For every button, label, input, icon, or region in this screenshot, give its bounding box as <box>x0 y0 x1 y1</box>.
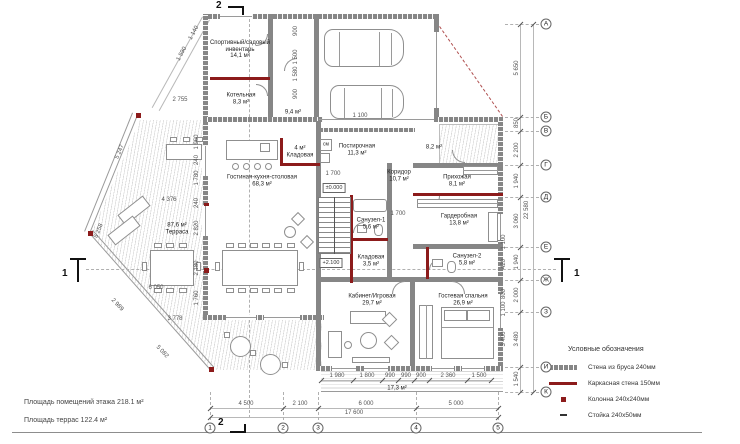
axis-bubble: Е <box>541 242 552 253</box>
room-label-line: Постирочная <box>339 143 375 150</box>
dimension-label: 1 980 <box>329 373 344 379</box>
wall-segment <box>268 14 273 122</box>
room-label-line: 29,7 м² <box>348 300 395 307</box>
dimension-label: 2 000 <box>514 287 520 302</box>
dimension-label: 1 500 <box>293 49 299 64</box>
room-label-line: Котельная <box>226 92 255 99</box>
room-label-line: Прихожая <box>443 174 471 181</box>
section-mark-1: 1 <box>62 268 68 279</box>
entry-porch-deck <box>439 124 501 165</box>
dimension-label: 850 <box>514 118 520 128</box>
room-label: 4 м²Кладовая <box>287 145 314 158</box>
legend-item: Колонна 240x240мм <box>548 391 728 407</box>
window-pane <box>332 368 356 369</box>
dimension-label: 800 <box>501 289 507 299</box>
chair <box>250 243 258 248</box>
kitchen-island <box>226 140 278 160</box>
desk <box>328 331 342 358</box>
chair <box>183 137 190 142</box>
stool <box>232 163 239 170</box>
dimension-label: 1 700 <box>390 211 405 217</box>
section-mark-flag <box>561 260 563 282</box>
chair <box>226 288 234 293</box>
washing-machine-label: см <box>323 142 329 149</box>
room-label-line: 17,3 м² <box>387 386 406 393</box>
room-label-line: 8,3 м² <box>226 99 255 106</box>
dimension-line <box>210 417 498 418</box>
legend-item-label: Стойка 240x50мм <box>588 412 642 419</box>
room-label: 9,4 м² <box>285 110 301 117</box>
room-label: 87,6 м²Терраса <box>165 222 188 235</box>
section-mark-flag <box>242 6 244 15</box>
rug <box>360 332 377 349</box>
axis-bubble: К <box>541 387 552 398</box>
dimension-label: 1 500 <box>471 373 486 379</box>
room-label-line: 5,8 м² <box>453 260 482 267</box>
axis-bubble: Д <box>541 192 552 203</box>
pillow <box>467 310 490 321</box>
frame-wall-segment <box>350 238 388 241</box>
elevation-mark: +2.100 <box>320 258 343 268</box>
column-icon <box>209 367 214 372</box>
dimension-label: 990 <box>401 373 411 379</box>
room-label-line: 14,1 м² <box>210 53 270 60</box>
axis-bubble: 4 <box>411 423 422 434</box>
room-label-line: 68,3 м² <box>227 181 297 188</box>
room-label: Кабинет/Игровая29,7 м² <box>348 293 395 306</box>
dimension-label: 900 <box>416 373 426 379</box>
desk-chair <box>344 341 352 349</box>
dimension-label: 5 000 <box>448 401 463 407</box>
axis-bubble: Б <box>541 112 552 123</box>
bathtub <box>353 199 387 212</box>
dimension-label: 1 940 <box>514 173 520 188</box>
frame-wall-swatch-icon <box>548 382 578 385</box>
room-label: 17,3 м² <box>387 386 406 393</box>
axis-bubble: 1 <box>205 423 216 434</box>
dimension-line <box>533 24 534 392</box>
dimension-label: 5 082 <box>155 345 170 360</box>
section-mark-flag <box>77 260 79 282</box>
window-pane <box>226 317 256 318</box>
laundry-sink <box>320 153 330 163</box>
dimension-label: 240 <box>194 198 200 208</box>
room-label-line: Спортивный/садовый <box>210 40 270 47</box>
legend-item: Каркасная стена 150мм <box>548 375 728 391</box>
room-label-line: 3,5 м² <box>358 261 385 268</box>
timber-wall-swatch-icon <box>548 365 578 370</box>
room-label: Котельная8,3 м² <box>226 92 255 105</box>
dimension-label: 900 <box>293 26 299 36</box>
room-label-line: Кладовая <box>287 152 314 159</box>
dimension-label: 3 778 <box>167 316 182 322</box>
wall-segment <box>314 14 319 122</box>
room-label-line: 13,8 м² <box>441 220 477 227</box>
room-label: Коридор10,7 м² <box>387 169 411 182</box>
section-mark-1: 1 <box>574 268 580 279</box>
dimension-label: 1 960 <box>194 134 200 149</box>
dimension-label: 17 600 <box>345 410 363 416</box>
round-table <box>230 336 251 357</box>
frame-wall-segment <box>426 247 429 279</box>
room-label-line: 9,4 м² <box>285 110 301 117</box>
window-pane <box>462 368 484 369</box>
room-label-line: Гостевая спальня <box>438 293 487 300</box>
dimension-label: 2 180 <box>194 260 200 275</box>
sink-icon <box>260 143 270 152</box>
terrace-area-note: Площадь террас 122.4 м² <box>24 412 144 430</box>
dimension-label: 6 000 <box>358 401 373 407</box>
window-pane <box>205 146 206 176</box>
room-label-line: Гостиная-кухня-столовая <box>227 174 297 181</box>
dimension-line <box>520 24 521 392</box>
chair <box>179 243 187 248</box>
stool <box>265 163 272 170</box>
dimension-label: 1 100 <box>501 301 507 316</box>
stool <box>254 163 261 170</box>
chair <box>299 262 304 271</box>
column-icon <box>88 231 93 236</box>
dimension-label: 2 200 <box>514 142 520 157</box>
stairs-rail <box>334 197 335 254</box>
frame-wall-segment <box>280 138 283 166</box>
frame-wall-segment <box>210 77 270 80</box>
axis-bubble: 3 <box>313 423 324 434</box>
column-swatch-icon <box>548 397 578 402</box>
car-top-view <box>324 29 404 67</box>
elevation-mark: ±0.000 <box>323 183 346 193</box>
dimension-label: 4 376 <box>161 197 176 203</box>
chair <box>224 332 230 338</box>
armchair <box>300 235 314 249</box>
chair <box>274 288 282 293</box>
legend-item: Стена из бруса 240мм <box>548 359 728 375</box>
chair <box>238 288 246 293</box>
axis-bubble: 2 <box>278 423 289 434</box>
window-pane <box>364 368 388 369</box>
closet-shelf-line <box>417 203 498 204</box>
dimension-line <box>210 408 498 409</box>
dimension-label: 4 500 <box>238 401 253 407</box>
chair <box>250 350 256 356</box>
window-pane <box>432 368 454 369</box>
room-label: Спортивный/садовыйинвентарь14,1 м² <box>210 40 270 60</box>
wardrobe-line <box>426 305 427 359</box>
door-arc <box>256 84 268 96</box>
chair <box>179 288 187 293</box>
axis-bubble: Ж <box>541 275 552 286</box>
dimension-label: 3 400 <box>501 331 507 346</box>
dimension-label: 22 580 <box>524 201 530 219</box>
room-label-line: Кладовая <box>358 254 385 261</box>
room-label-line: 26,9 м² <box>438 300 487 307</box>
chair <box>262 288 270 293</box>
coffee-table <box>284 226 296 238</box>
closet-shelf <box>488 212 498 242</box>
column-icon <box>204 268 209 273</box>
room-label-line: 5,6 м² <box>357 224 386 231</box>
room-label-line: 11,3 м² <box>339 150 375 157</box>
legend-item-label: Стена из бруса 240мм <box>588 364 656 371</box>
dimension-label: 1 760 <box>194 290 200 305</box>
window-pane <box>220 16 252 17</box>
dimension-label: 1 100 <box>501 234 507 249</box>
floor-area-note: Площадь помещений этажа 218.1 м² <box>24 394 144 412</box>
area-notes: Площадь помещений этажа 218.1 м² Площадь… <box>24 394 144 430</box>
dimension-label: 420 <box>501 259 507 269</box>
armchair <box>384 335 400 351</box>
round-table <box>260 354 281 375</box>
section-mark-2: 2 <box>216 0 222 11</box>
garage-opening-line <box>319 119 434 120</box>
dimension-label: 240 <box>194 155 200 165</box>
axis-bubble: 5 <box>493 423 504 434</box>
legend-item: Стойка 240x50мм <box>548 407 728 423</box>
legend-item-label: Колонна 240x240мм <box>588 396 649 403</box>
chair <box>282 362 288 368</box>
wall-segment <box>319 128 415 132</box>
legend: Условные обозначения Стена из бруса 240м… <box>548 346 728 423</box>
dimension-label: 1 700 <box>325 171 340 177</box>
hall-closet-line <box>463 170 498 171</box>
chair <box>250 288 258 293</box>
section-mark-flag <box>244 424 246 433</box>
frame-wall-segment <box>280 163 320 166</box>
stool <box>243 163 250 170</box>
room-label-line: Гардеробная <box>441 213 477 220</box>
post-swatch-icon <box>548 414 578 416</box>
sofa <box>350 311 386 324</box>
room-label-line: 8,1 м² <box>443 181 471 188</box>
frame-wall-segment <box>413 193 503 196</box>
section-line-2 <box>249 14 250 418</box>
dimension-label: 5 650 <box>514 60 520 75</box>
tv-bench <box>352 357 390 363</box>
room-label: Гардеробная13,8 м² <box>441 213 477 226</box>
dimension-label: 990 <box>385 373 395 379</box>
room-label: Кладовая3,5 м² <box>358 254 385 267</box>
armchair <box>291 212 305 226</box>
column-icon <box>136 113 141 118</box>
dimension-label: 1 540 <box>514 371 520 386</box>
axis-bubble: Г <box>541 160 552 171</box>
wall-segment <box>410 282 415 366</box>
room-label: 8,2 м² <box>426 145 442 152</box>
dimension-label: 3 480 <box>514 331 520 346</box>
room-label: Гостиная-кухня-столовая68,3 м² <box>227 174 297 187</box>
room-label-line: Кабинет/Игровая <box>348 293 395 300</box>
legend-item-label: Каркасная стена 150мм <box>588 380 660 387</box>
chair <box>170 137 177 142</box>
room-label-line: Терраса <box>165 229 188 236</box>
bottom-rule <box>12 432 702 433</box>
dimension-label: 1 940 <box>514 254 520 269</box>
pillow <box>444 310 467 321</box>
room-label: Постирочная11,3 м² <box>339 143 375 156</box>
chair <box>215 262 220 271</box>
dimension-label: 2 989 <box>110 298 125 313</box>
dimension-label: 1 100 <box>352 113 367 119</box>
chair <box>274 243 282 248</box>
dimension-label: 2 360 <box>440 373 455 379</box>
window-pane <box>264 317 300 318</box>
room-label-line: 87,6 м² <box>165 222 188 229</box>
chair <box>262 243 270 248</box>
window-pane <box>205 206 206 236</box>
door-arc <box>452 281 465 294</box>
room-label: Санузел-25,8 м² <box>453 253 482 266</box>
section-mark-2: 2 <box>218 417 224 428</box>
legend-title: Условные обозначения <box>568 346 728 353</box>
axis-bubble: З <box>541 307 552 318</box>
floor-plan: 2 2 1 1 Условные обозначения Стена из бр… <box>0 0 740 444</box>
axis-bubble: А <box>541 19 552 30</box>
door-arc <box>392 281 405 294</box>
chair <box>287 243 295 248</box>
room-label-line: 4 м² <box>287 145 314 152</box>
dimension-label: 6 050 <box>148 285 163 291</box>
dimension-label: 1 800 <box>359 373 374 379</box>
chair <box>226 243 234 248</box>
room-label-line: инвентарь <box>210 47 270 54</box>
roof-valley-line <box>436 22 503 117</box>
chair <box>166 288 174 293</box>
room-label: Гостевая спальня26,9 м² <box>438 293 487 306</box>
room-label: Санузел-15,6 м² <box>357 217 386 230</box>
room-label-line: Коридор <box>387 169 411 176</box>
sink-icon <box>432 259 443 267</box>
chair <box>142 262 147 271</box>
axis-bubble: И <box>541 362 552 373</box>
dimension-label: 1 580 <box>293 66 299 81</box>
axis-bubble: В <box>541 126 552 137</box>
dimension-label: 2 100 <box>292 401 307 407</box>
wall-segment <box>434 117 503 122</box>
dimension-label: 2 755 <box>172 97 187 103</box>
room-label-line: 8,2 м² <box>426 145 442 152</box>
chair <box>287 288 295 293</box>
room-label-line: 10,7 м² <box>387 176 411 183</box>
dimension-label: 2 820 <box>194 220 200 235</box>
dimension-label: 3 060 <box>514 213 520 228</box>
terrace-table <box>150 250 194 286</box>
dining-table <box>222 250 298 286</box>
chair <box>166 243 174 248</box>
room-label-line: Санузел-1 <box>357 217 386 224</box>
chair <box>238 243 246 248</box>
wall-segment <box>203 117 323 122</box>
room-label: Прихожая8,1 м² <box>443 174 471 187</box>
dimension-label: 900 <box>293 89 299 99</box>
room-label-line: Санузел-2 <box>453 253 482 260</box>
dimension-label: 1 780 <box>194 170 200 185</box>
blanket-line <box>442 327 493 328</box>
garage-door-line <box>436 32 437 108</box>
chair <box>154 243 162 248</box>
